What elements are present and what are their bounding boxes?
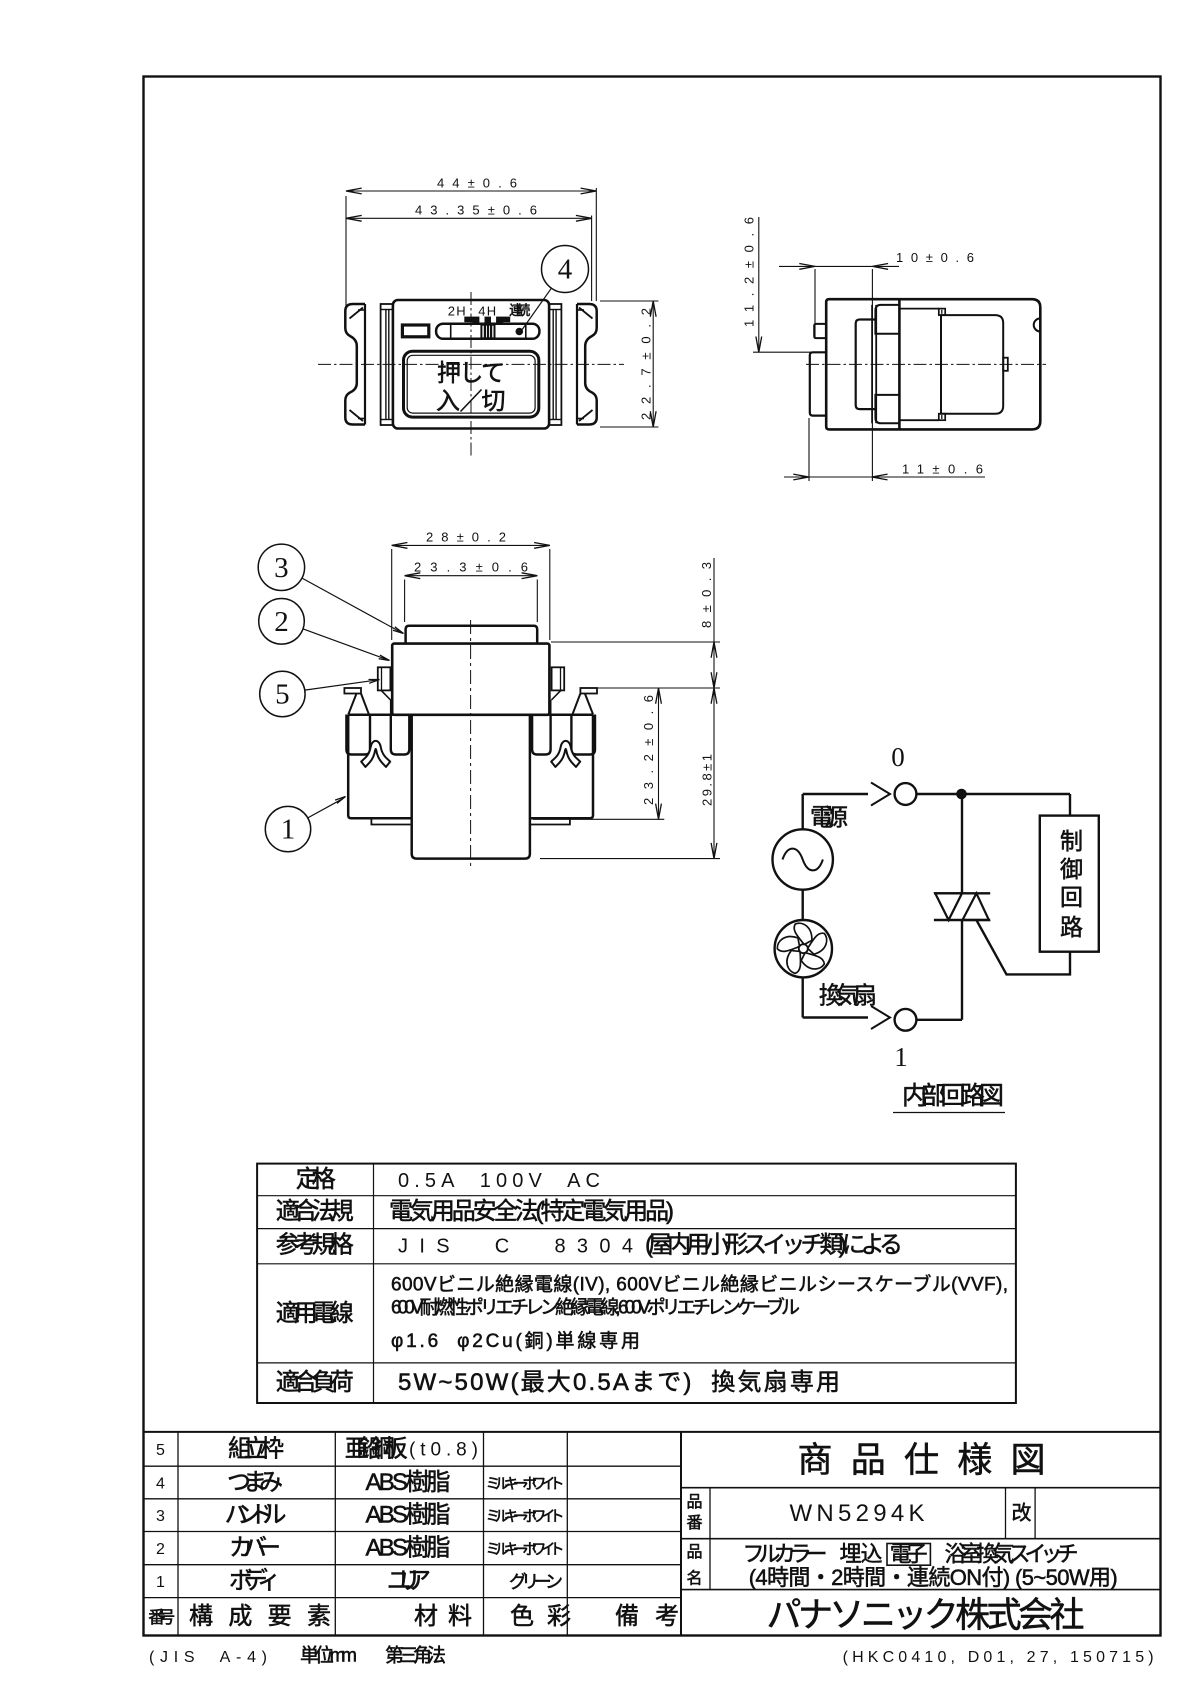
svg-text:43.35±0.6: 43.35±0.6 (415, 203, 537, 218)
svg-text:路: 路 (1060, 914, 1083, 940)
svg-text:適用電線: 適用電線 (276, 1300, 354, 1327)
svg-text:パナソニック株式会社: パナソニック株式会社 (767, 1596, 1085, 1635)
svg-text:600V耐燃性ポリエチレン絶縁電線, 600Vポリエチレンケ: 600V耐燃性ポリエチレン絶縁電線, 600Vポリエチレンケーブル (391, 1296, 800, 1319)
svg-text:ミルキーホワイト: ミルキーホワイト (486, 1508, 565, 1525)
svg-text:5: 5 (275, 679, 290, 711)
svg-text:換気扇: 換気扇 (819, 983, 877, 1010)
svg-text:番号: 番号 (148, 1608, 175, 1627)
svg-text:3: 3 (156, 1508, 165, 1525)
svg-text:つまみ: つまみ (227, 1469, 283, 1496)
svg-text:ミルキーホワイト: ミルキーホワイト (486, 1476, 565, 1493)
svg-text:2: 2 (156, 1541, 165, 1558)
svg-text:ボディ: ボディ (229, 1568, 281, 1595)
svg-text:2H: 2H (448, 304, 466, 319)
svg-text:カバー: カバー (229, 1535, 281, 1562)
svg-text:内部回路図: 内部回路図 (902, 1082, 1004, 1110)
svg-text:適合法規: 適合法規 (276, 1198, 354, 1225)
svg-text:名: 名 (686, 1570, 702, 1588)
svg-text:定格: 定格 (296, 1166, 336, 1193)
svg-text:1: 1 (894, 1042, 908, 1072)
svg-text:適合負荷: 適合負荷 (276, 1369, 354, 1396)
svg-text:ABS樹脂: ABS樹脂 (366, 1535, 451, 1562)
svg-text:4: 4 (156, 1476, 165, 1493)
svg-text:3: 3 (274, 552, 289, 584)
svg-text:(屋内用小形スイッチ類)による: (屋内用小形スイッチ類)による (645, 1232, 903, 1259)
svg-text:浴室換気スイッチ: 浴室換気スイッチ (945, 1542, 1079, 1567)
svg-text:ハンドル: ハンドル (225, 1502, 287, 1529)
svg-text:1: 1 (281, 814, 296, 846)
svg-text:グリーン: グリーン (509, 1572, 563, 1592)
svg-text:φ1.6 φ2Cu(銅)単線専用: φ1.6 φ2Cu(銅)単線専用 (391, 1330, 640, 1352)
svg-text:回: 回 (1060, 884, 1083, 910)
svg-text:ミルキーホワイト: ミルキーホワイト (486, 1541, 565, 1558)
svg-text:5W~50W(最大0.5Aまで) 換気扇専用: 5W~50W(最大0.5Aまで) 換気扇専用 (398, 1369, 840, 1396)
svg-text:電気用品安全法(特定電気用品): 電気用品安全法(特定電気用品) (389, 1198, 674, 1225)
svg-text:亜鉛鋼板: 亜鉛鋼板 (345, 1436, 408, 1463)
svg-text:連続: 連続 (509, 303, 531, 318)
svg-text:(4時間・2時間・連続ON付) (5~50W用): (4時間・2時間・連続ON付) (5~50W用) (749, 1565, 1118, 1590)
svg-text:改: 改 (1012, 1502, 1032, 1525)
svg-text:番: 番 (686, 1514, 702, 1532)
svg-text:600Vビニル絶縁電線(IV), 600Vビニル絶縁ビニルシ: 600Vビニル絶縁電線(IV), 600Vビニル絶縁ビニルシースケーブル(VVF… (391, 1273, 1008, 1296)
svg-text:5: 5 (156, 1442, 165, 1459)
svg-text:4: 4 (558, 254, 573, 286)
svg-text:埋込: 埋込 (840, 1542, 883, 1567)
svg-text:ABS樹脂: ABS樹脂 (366, 1469, 451, 1496)
svg-text:参考規格: 参考規格 (276, 1232, 354, 1259)
svg-text:0: 0 (891, 742, 905, 772)
svg-text:ユリア: ユリア (387, 1568, 431, 1595)
svg-text:組立枠: 組立枠 (228, 1436, 284, 1463)
svg-text:電子: 電子 (890, 1542, 928, 1567)
svg-text:1: 1 (156, 1574, 165, 1591)
svg-text:押して: 押して (437, 360, 505, 387)
svg-text:0.5A 100V AC: 0.5A 100V AC (398, 1170, 600, 1192)
svg-text:電源: 電源 (810, 805, 848, 832)
svg-text:フルカラー: フルカラー (743, 1542, 828, 1567)
svg-text:御: 御 (1060, 856, 1083, 882)
svg-text:制: 制 (1060, 828, 1083, 854)
svg-text:入: 入 (436, 388, 460, 415)
svg-text:単位mm: 単位mm (300, 1645, 357, 1667)
svg-text:2: 2 (274, 606, 289, 638)
svg-text:第三角法: 第三角法 (385, 1645, 446, 1667)
svg-text:4H: 4H (478, 304, 496, 319)
svg-text:切: 切 (482, 388, 506, 415)
svg-text:品: 品 (686, 1544, 702, 1561)
svg-text:ABS樹脂: ABS樹脂 (366, 1502, 451, 1529)
svg-text:品: 品 (686, 1494, 702, 1511)
